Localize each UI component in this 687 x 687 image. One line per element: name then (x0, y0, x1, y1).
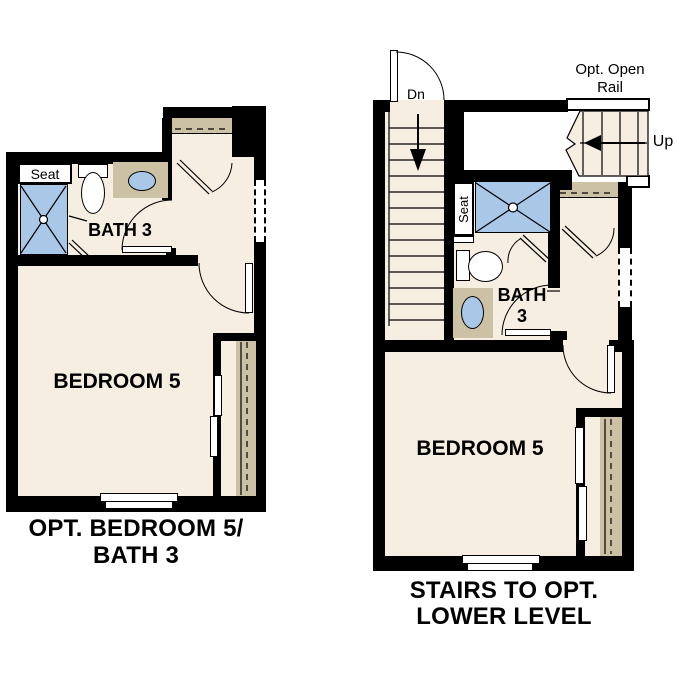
bath3-label: BATH (488, 285, 556, 306)
door-leaf (245, 263, 253, 313)
door-leaf (122, 246, 172, 253)
wall (622, 340, 634, 570)
stairs-up-label: Up (646, 133, 680, 151)
open-rail (626, 175, 650, 188)
seat-label: Seat (31, 166, 60, 182)
wall (213, 333, 266, 341)
sink-icon (461, 296, 484, 329)
hall-floor (558, 198, 618, 340)
door-leaf (390, 50, 398, 102)
threshold (453, 236, 474, 243)
shower-seat: Seat (18, 163, 72, 184)
door-opening-floor (563, 340, 609, 352)
optional-opening (254, 180, 266, 242)
wall (6, 152, 18, 512)
closet-door-panel (578, 486, 587, 541)
stairwell-floor (385, 112, 444, 340)
optional-opening (618, 248, 632, 307)
window-icon (467, 563, 533, 571)
open-rail-line2: Rail (558, 79, 662, 97)
wall (576, 408, 634, 417)
bedroom5-label: BEDROOM 5 (26, 370, 208, 394)
shower-seat: Seat (453, 182, 474, 236)
bath3-number-label: 3 (488, 306, 556, 327)
closet-shelf (600, 417, 622, 556)
open-rail (566, 98, 650, 111)
wall (444, 100, 568, 112)
caption-line1: OPT. BEDROOM 5/ (0, 515, 272, 542)
caption-line2: BATH 3 (0, 542, 272, 569)
door-leaf (505, 329, 551, 336)
caption-line2: LOWER LEVEL (372, 604, 636, 630)
wall (373, 100, 390, 112)
open-rail-label: Opt. Open Rail (558, 61, 662, 97)
toilet-bowl-icon (81, 172, 105, 214)
closet-door-panel (210, 416, 218, 457)
closet-shelf (236, 341, 256, 496)
floor-plan-canvas: Seat (0, 0, 687, 687)
closet-door-panel (575, 427, 584, 484)
wall-corner-block (232, 106, 266, 157)
open-rail-line1: Opt. Open (558, 61, 662, 79)
seat-label: Seat (456, 196, 471, 223)
wall (373, 100, 385, 570)
stairs-down-label: Dn (398, 86, 434, 102)
window-icon (105, 501, 173, 509)
caption-line1: STAIRS TO OPT. (372, 578, 636, 604)
closet-shelf (172, 118, 232, 134)
left-plan-caption: OPT. BEDROOM 5/ BATH 3 (0, 515, 272, 569)
shower-icon (475, 181, 551, 233)
sink-icon (128, 171, 156, 191)
wall (550, 331, 567, 340)
closet-door-panel (214, 375, 222, 416)
door-leaf (607, 345, 615, 393)
wall (380, 340, 563, 352)
bath3-label: BATH 3 (60, 220, 180, 241)
right-plan-caption: STAIRS TO OPT. LOWER LEVEL (372, 578, 636, 630)
toilet-bowl-icon (468, 251, 503, 282)
bedroom5-label: BEDROOM 5 (389, 437, 571, 461)
